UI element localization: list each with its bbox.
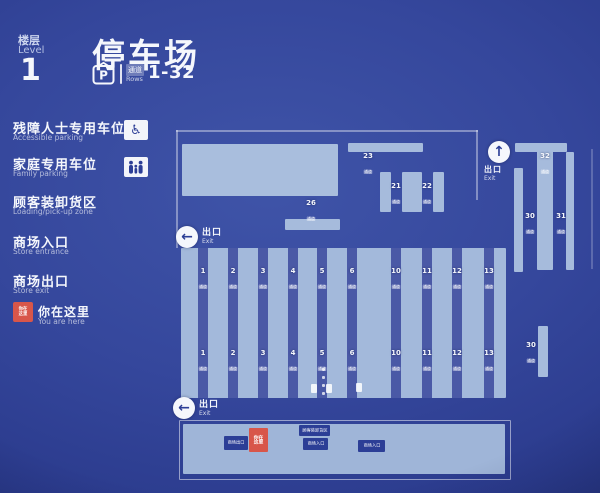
aisle-label-grid_bottom-1: 1通道 [191, 349, 215, 376]
exit-label-left: 出口 Exit [202, 228, 222, 245]
aisle-bar-23 [348, 143, 423, 152]
header-divider [120, 64, 122, 84]
aisle-label-30: 30通道 [518, 212, 542, 239]
mall-loading-box: 顾客装卸货区 [299, 425, 330, 436]
aisle-label-32: 32通道 [533, 152, 557, 179]
aisle-label-grid_bottom-13: 13通道 [477, 349, 501, 376]
wheelchair-icon: ♿ [124, 120, 148, 140]
aisle-label-grid_top-13: 13通道 [477, 267, 501, 294]
aisle-label-grid_bottom-6: 6通道 [340, 349, 364, 376]
aisle-label-grid_bottom-2: 2通道 [221, 349, 245, 376]
floor-number: 1 [20, 53, 41, 88]
legend-family-en: Family parking [13, 169, 68, 178]
aisle-label-grid_bottom-5: 5通道 [310, 349, 334, 376]
aisle-label-grid_bottom-12: 12通道 [445, 349, 469, 376]
mall-you-are-here-box: 你在这里 [249, 428, 268, 452]
aisle-label-grid_top-10: 10通道 [384, 267, 408, 294]
aisle-label-21: 21通道 [384, 182, 408, 209]
exit-label-bottom: 出口 Exit [199, 400, 219, 417]
mall-entrance-box-2: 商场入口 [358, 440, 385, 452]
building-block [182, 144, 338, 196]
aisle-label-grid_bottom-4: 4通道 [281, 349, 305, 376]
family-icon [124, 157, 148, 177]
svg-text:P: P [99, 69, 108, 83]
exit-badge-top-right: ↑ [488, 141, 510, 163]
you-are-here-marker: 你在这里 [13, 302, 33, 322]
aisle-label-grid_top-3: 3通道 [251, 267, 275, 294]
parking-icon: P [92, 61, 115, 85]
stall-dot [322, 368, 325, 371]
pillar-tag [356, 383, 362, 392]
aisle-label-grid_top-12: 12通道 [445, 267, 469, 294]
aisle-label-23: 23通道 [356, 152, 380, 179]
mall-store-exit-box: 商场出口 [224, 436, 248, 450]
pillar-tag [326, 384, 332, 393]
aisle-label-22: 22通道 [415, 182, 439, 209]
exit-badge-left: ← [176, 226, 198, 248]
exit-badge-bottom: ← [173, 397, 195, 419]
legend-accessible-en: Accessible parking [13, 133, 83, 142]
stall-dot [322, 384, 325, 387]
map-border-mid [476, 130, 478, 200]
stall-dot [322, 392, 325, 395]
arrow-up-icon: ↑ [493, 144, 505, 160]
pillar-tag [311, 384, 317, 393]
exit-label-top-right: 出口 Exit [484, 165, 514, 182]
parking-sign: 楼层 Level 1 停车场 P 通道 Rows 1-32 残障人士专用车位 A… [0, 0, 600, 493]
aisle-label-grid_bottom-10: 10通道 [384, 349, 408, 376]
legend-loading-en: Loading/pick-up zone [13, 207, 93, 216]
aisle-label-26: 26通道 [299, 199, 323, 226]
mall-entrance-box-1: 商场入口 [303, 438, 328, 450]
legend-you-are-here-en: You are here [38, 317, 85, 326]
aisle-label-30b: 30通道 [519, 341, 543, 368]
map-border-right [591, 149, 593, 269]
aisle-label-grid_top-6: 6通道 [340, 267, 364, 294]
aisle-label-31: 31通道 [549, 212, 573, 239]
map-border-top [176, 130, 478, 132]
stall-dot [322, 376, 325, 379]
aisle-label-grid_top-4: 4通道 [281, 267, 305, 294]
aisle-label-grid_top-2: 2通道 [221, 267, 245, 294]
rows-label-en: Rows [126, 75, 143, 83]
aisle-bar-right-3 [566, 152, 574, 270]
arrow-left-icon: ← [178, 400, 190, 416]
legend-store-entrance-en: Store entrance [13, 247, 69, 256]
aisle-label-grid_top-1: 1通道 [191, 267, 215, 294]
aisle-label-grid_bottom-11: 11通道 [415, 349, 439, 376]
aisle-label-grid_top-11: 11通道 [415, 267, 439, 294]
aisle-label-grid_top-5: 5通道 [310, 267, 334, 294]
legend-store-exit-en: Store exit [13, 286, 49, 295]
you-are-here-marker-text: 你在这里 [17, 307, 29, 317]
rows-range: 1-32 [148, 62, 195, 83]
arrow-left-icon: ← [181, 229, 193, 245]
aisle-label-grid_bottom-3: 3通道 [251, 349, 275, 376]
